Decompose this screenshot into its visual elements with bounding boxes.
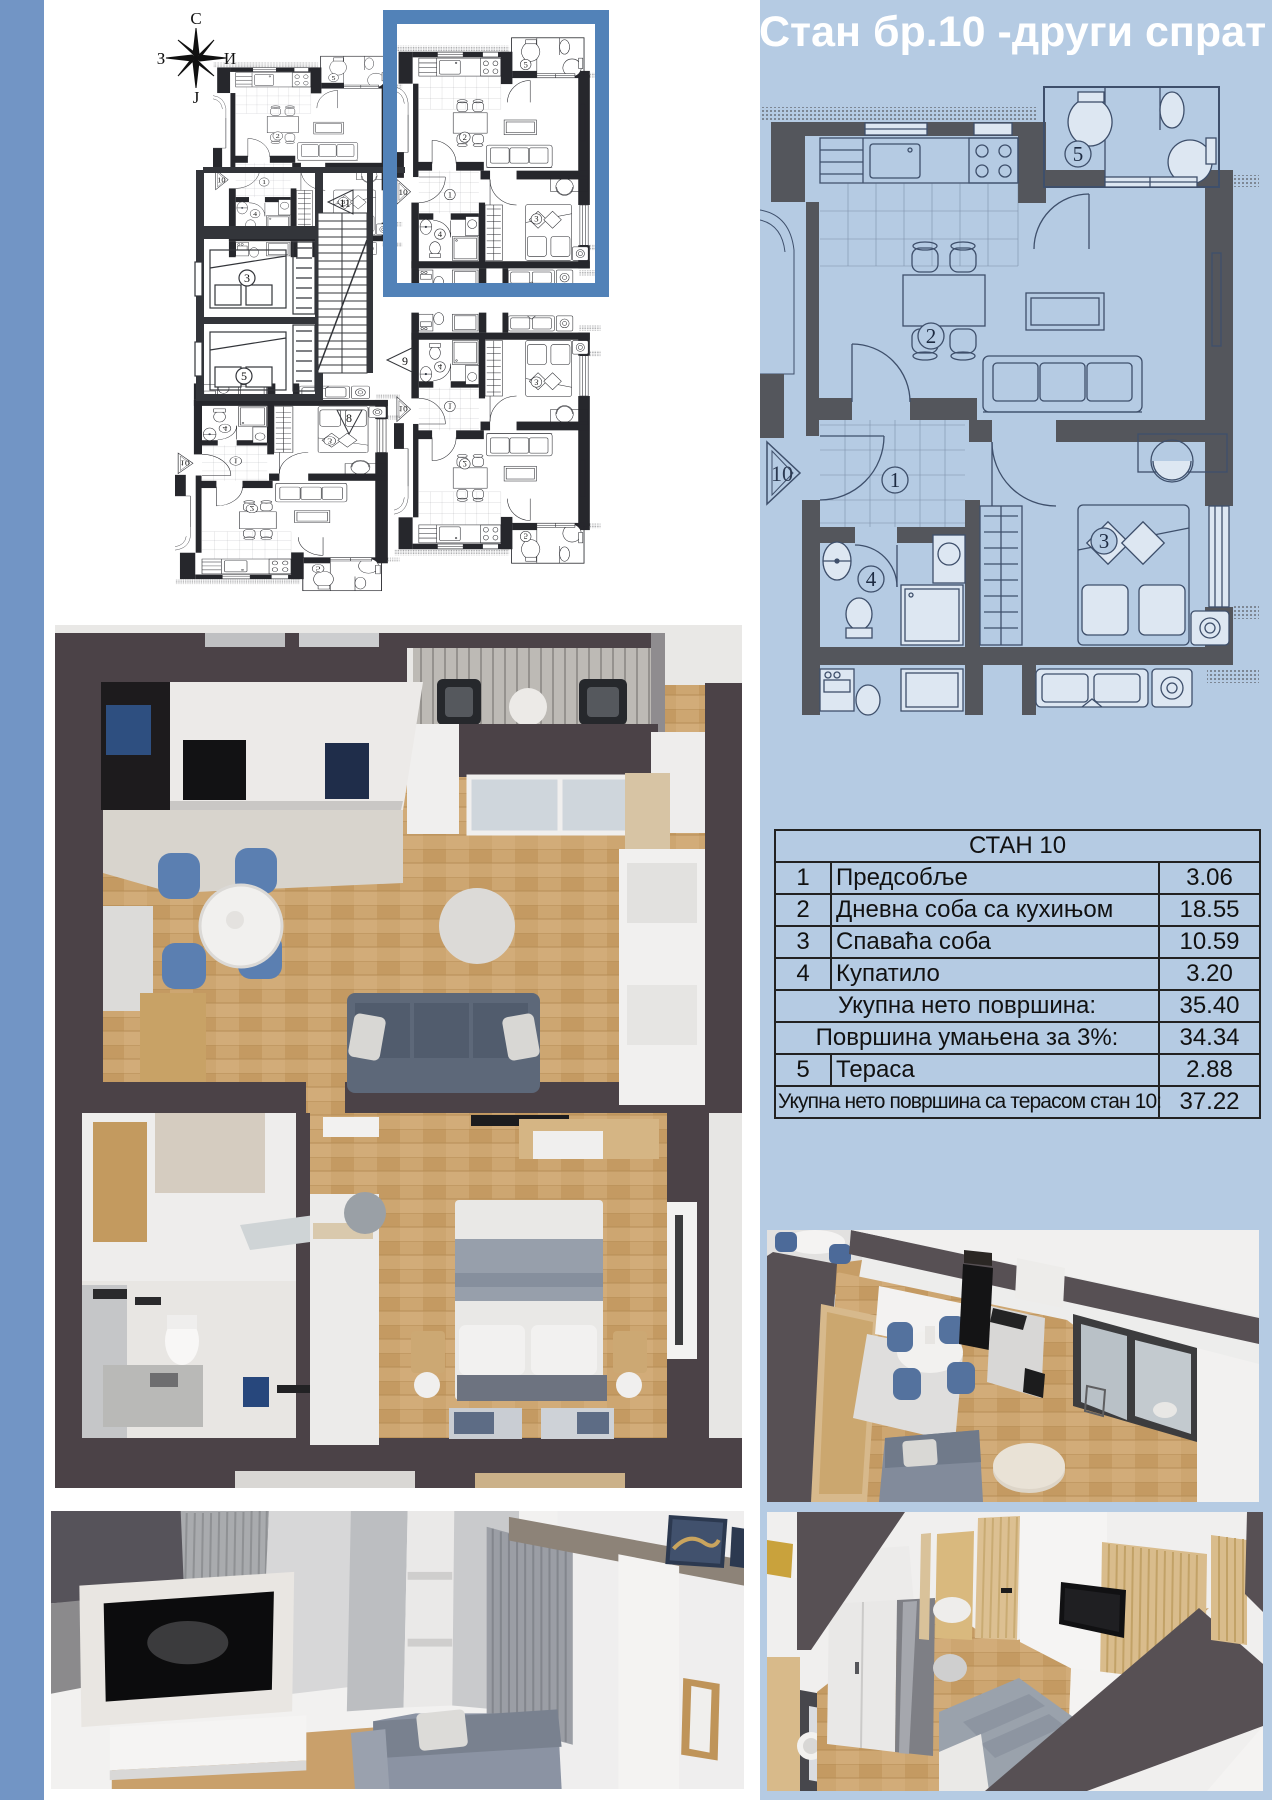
svg-text:1: 1: [890, 468, 901, 492]
svg-text:9: 9: [402, 354, 408, 368]
svg-text:4: 4: [866, 567, 877, 591]
svg-text:З: З: [157, 49, 166, 68]
svg-text:3: 3: [1099, 529, 1110, 553]
svg-text:Ј: Ј: [193, 88, 200, 107]
svg-text:С: С: [190, 10, 201, 28]
svg-text:10: 10: [771, 461, 793, 486]
svg-text:3: 3: [244, 271, 250, 285]
svg-text:5: 5: [1073, 142, 1084, 166]
svg-text:5: 5: [241, 369, 247, 383]
svg-text:11: 11: [339, 196, 351, 210]
svg-text:8: 8: [346, 411, 352, 425]
svg-text:2: 2: [926, 324, 937, 348]
